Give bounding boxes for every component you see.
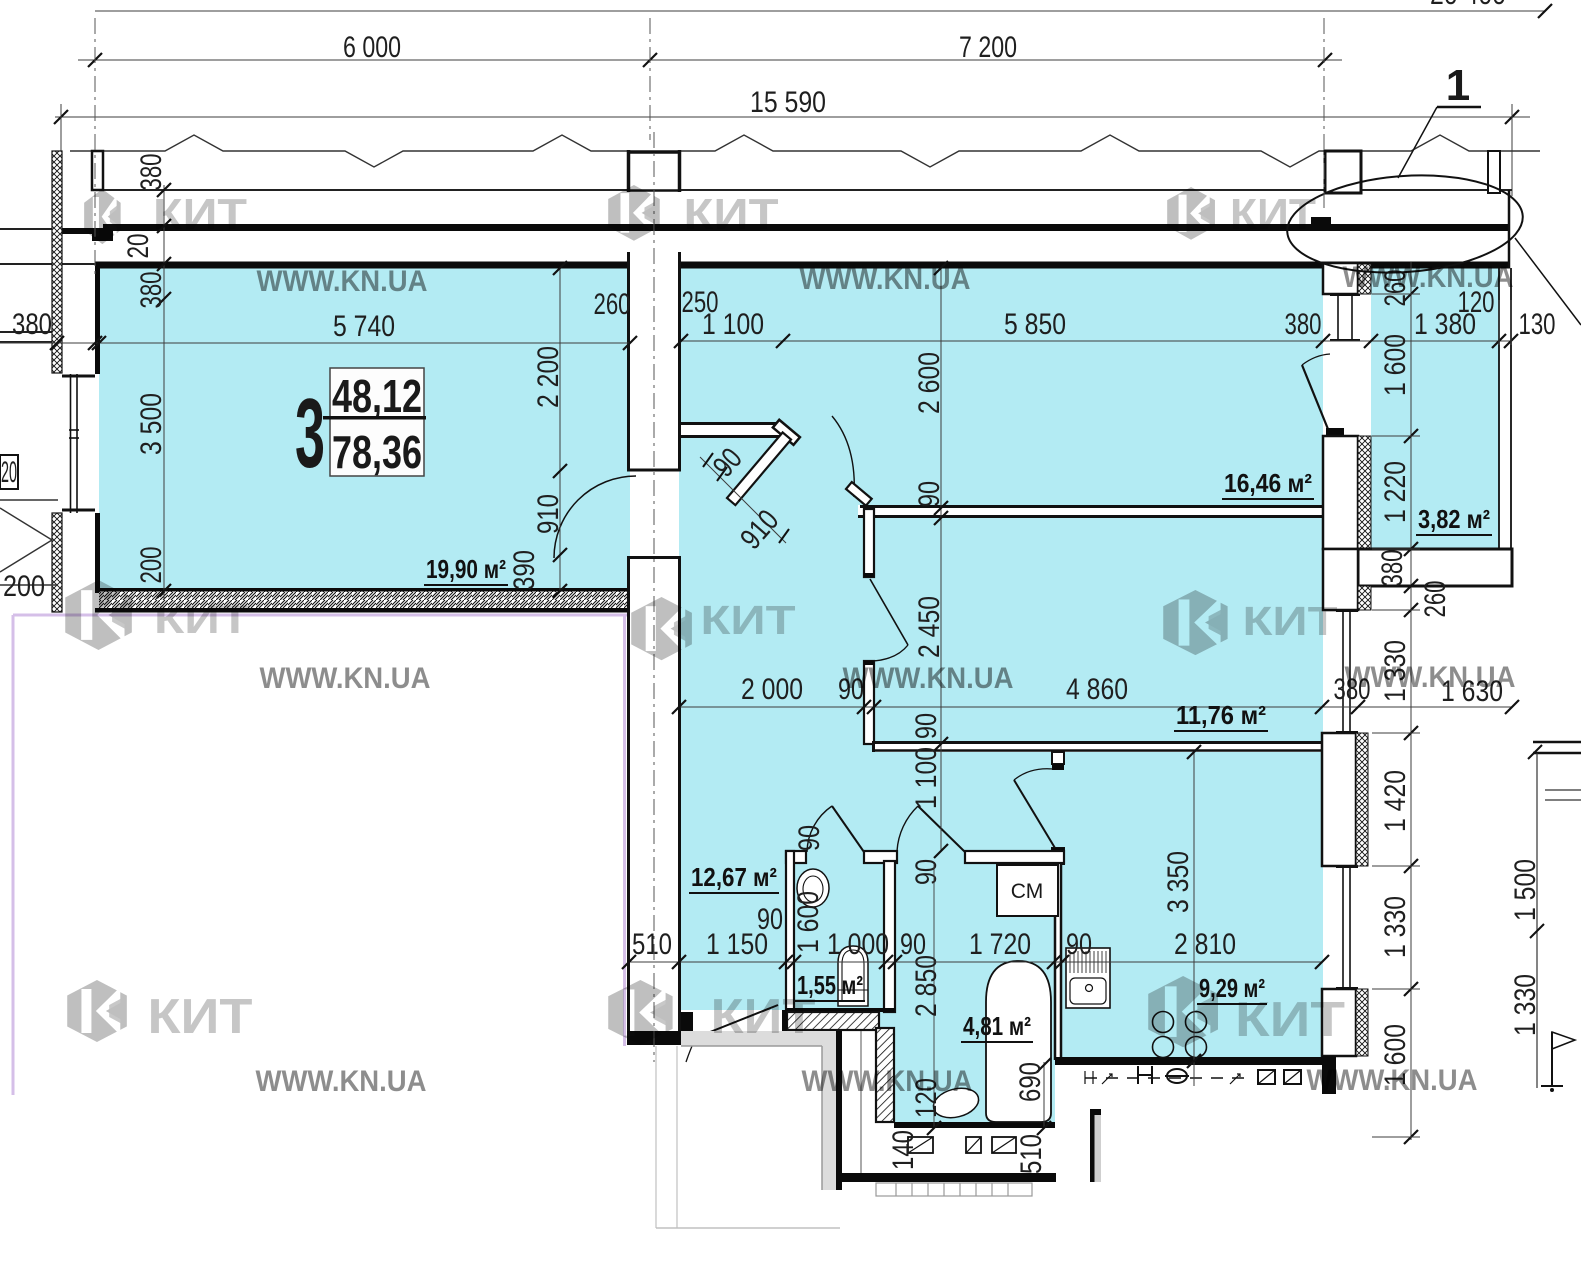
svg-text:WWW.KN.UA: WWW.KN.UA [800, 263, 971, 296]
svg-text:140: 140 [887, 1130, 920, 1170]
svg-text:2 000: 2 000 [741, 673, 803, 706]
svg-text:380: 380 [135, 272, 168, 309]
svg-text:48,12: 48,12 [332, 370, 422, 422]
svg-text:78,36: 78,36 [332, 426, 422, 478]
svg-text:КИТ: КИТ [153, 190, 247, 239]
svg-text:260: 260 [594, 288, 631, 321]
svg-text:2 850: 2 850 [910, 955, 943, 1017]
svg-text:3: 3 [295, 378, 325, 488]
svg-text:1 600: 1 600 [1379, 334, 1412, 396]
svg-text:1 720: 1 720 [969, 928, 1031, 961]
svg-text:380: 380 [12, 308, 52, 341]
svg-text:90: 90 [913, 481, 946, 507]
svg-text:690: 690 [1014, 1062, 1047, 1102]
svg-text:2 450: 2 450 [913, 596, 946, 658]
svg-text:1 420: 1 420 [1379, 770, 1412, 832]
svg-text:СМ: СМ [1011, 880, 1043, 903]
svg-text:6 000: 6 000 [343, 31, 401, 64]
svg-text:20 400: 20 400 [1430, 0, 1506, 11]
svg-text:КИТ: КИТ [1230, 190, 1316, 239]
svg-text:КИТ: КИТ [148, 990, 253, 1044]
svg-text:WWW.KN.UA: WWW.KN.UA [1307, 1064, 1478, 1097]
svg-text:КИТ: КИТ [711, 990, 816, 1044]
svg-text:910: 910 [532, 494, 565, 534]
svg-text:WWW.KN.UA: WWW.KN.UA [1343, 261, 1514, 294]
svg-text:1 220: 1 220 [1379, 461, 1412, 523]
svg-text:7 200: 7 200 [959, 31, 1017, 64]
svg-text:90: 90 [757, 903, 783, 936]
svg-text:90: 90 [910, 859, 943, 885]
svg-text:4,81 м²: 4,81 м² [963, 1011, 1031, 1041]
svg-text:380: 380 [1376, 550, 1409, 587]
svg-text:1 100: 1 100 [910, 747, 943, 809]
svg-text:15 590: 15 590 [750, 86, 826, 119]
svg-text:90: 90 [793, 825, 826, 851]
svg-text:200: 200 [3, 570, 45, 603]
svg-text:1 330: 1 330 [1509, 974, 1542, 1036]
svg-text:4 860: 4 860 [1066, 673, 1128, 706]
svg-text:90: 90 [910, 713, 943, 739]
svg-text:5 740: 5 740 [333, 310, 395, 343]
svg-text:2 810: 2 810 [1174, 928, 1236, 961]
svg-text:510: 510 [1015, 1134, 1048, 1174]
svg-text:90: 90 [1066, 928, 1092, 961]
svg-text:WWW.KN.UA: WWW.KN.UA [1345, 661, 1516, 694]
svg-text:КИТ: КИТ [154, 598, 250, 642]
svg-text:20: 20 [122, 234, 155, 259]
svg-text:380: 380 [1285, 308, 1322, 341]
svg-text:1 330: 1 330 [1379, 896, 1412, 958]
svg-text:WWW.KN.UA: WWW.KN.UA [260, 662, 431, 695]
svg-text:2 600: 2 600 [913, 352, 946, 414]
svg-text:КИТ: КИТ [701, 597, 796, 643]
svg-text:WWW.KN.UA: WWW.KN.UA [802, 1065, 973, 1098]
svg-text:19,90 м²: 19,90 м² [426, 554, 506, 584]
svg-text:11,76 м²: 11,76 м² [1176, 700, 1266, 730]
svg-text:3 350: 3 350 [1162, 851, 1195, 913]
svg-text:260: 260 [1419, 581, 1452, 618]
svg-text:130: 130 [1519, 308, 1556, 341]
svg-text:WWW.KN.UA: WWW.KN.UA [257, 265, 428, 298]
svg-text:1 100: 1 100 [702, 308, 764, 341]
svg-text:16,46 м²: 16,46 м² [1224, 468, 1312, 498]
svg-text:200: 200 [135, 547, 168, 584]
svg-text:КИТ: КИТ [1235, 993, 1345, 1047]
svg-text:WWW.KN.UA: WWW.KN.UA [256, 1065, 427, 1098]
svg-text:2 200: 2 200 [532, 346, 565, 408]
svg-text:1: 1 [1446, 61, 1470, 110]
svg-text:5 850: 5 850 [1004, 308, 1066, 341]
svg-text:1 600: 1 600 [792, 891, 825, 953]
svg-text:20: 20 [1, 456, 17, 489]
svg-text:1 000: 1 000 [827, 928, 889, 961]
svg-text:390: 390 [508, 550, 541, 590]
svg-text:3,82 м²: 3,82 м² [1418, 504, 1490, 534]
svg-text:3 500: 3 500 [135, 393, 168, 455]
svg-text:12,67 м²: 12,67 м² [691, 862, 777, 892]
svg-text:WWW.KN.UA: WWW.KN.UA [843, 662, 1014, 695]
svg-text:КИТ: КИТ [684, 190, 779, 239]
svg-text:КИТ: КИТ [1243, 598, 1338, 644]
svg-text:90: 90 [900, 928, 926, 961]
svg-text:510: 510 [632, 928, 672, 961]
svg-text:1 500: 1 500 [1509, 859, 1542, 921]
svg-text:380: 380 [135, 154, 168, 191]
